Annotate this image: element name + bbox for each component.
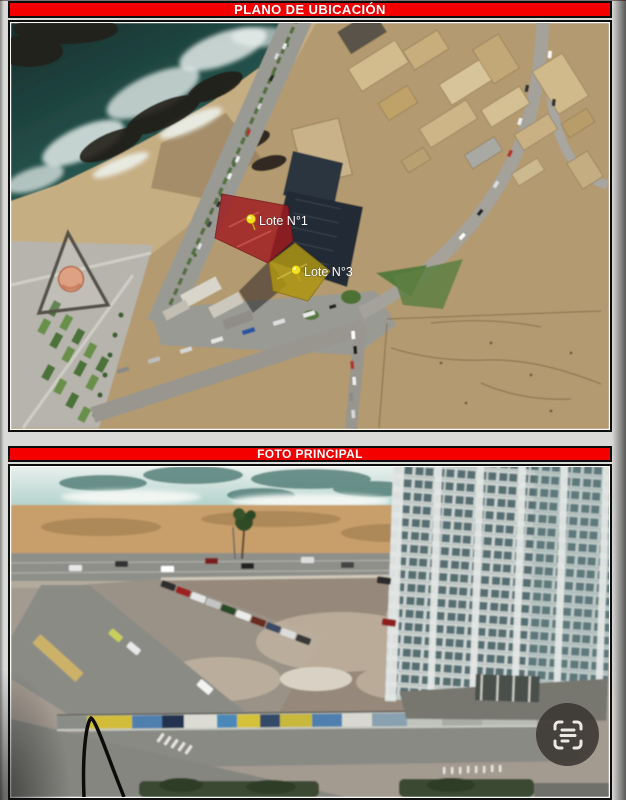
edge-vignette-right: [612, 0, 626, 800]
roundabout-island: [341, 290, 361, 304]
section-title-foto: FOTO PRINCIPAL: [257, 447, 363, 461]
section-header-plano: PLANO DE UBICACIÓN: [8, 1, 612, 18]
section-header-foto: FOTO PRINCIPAL: [8, 446, 612, 462]
lot1-label: Lote N°1: [259, 214, 308, 228]
scan-text-icon: [551, 718, 585, 752]
edge-vignette-left: [0, 0, 4, 800]
location-plan-image: Lote N°1 Lote N°3: [8, 20, 612, 432]
scan-text-button[interactable]: [536, 703, 599, 766]
photo-artwork: [11, 467, 609, 797]
aerial-photo: [11, 467, 609, 797]
main-photo-image: [8, 464, 612, 800]
lot3-label: Lote N°3: [304, 265, 353, 279]
high-rise-building: [384, 467, 609, 726]
satellite-map: Lote N°1 Lote N°3: [11, 23, 609, 429]
map-artwork: [11, 23, 609, 429]
section-title-plano: PLANO DE UBICACIÓN: [234, 2, 386, 17]
page: { "theme": { "page_bg": "#dadad8", "head…: [0, 0, 626, 800]
